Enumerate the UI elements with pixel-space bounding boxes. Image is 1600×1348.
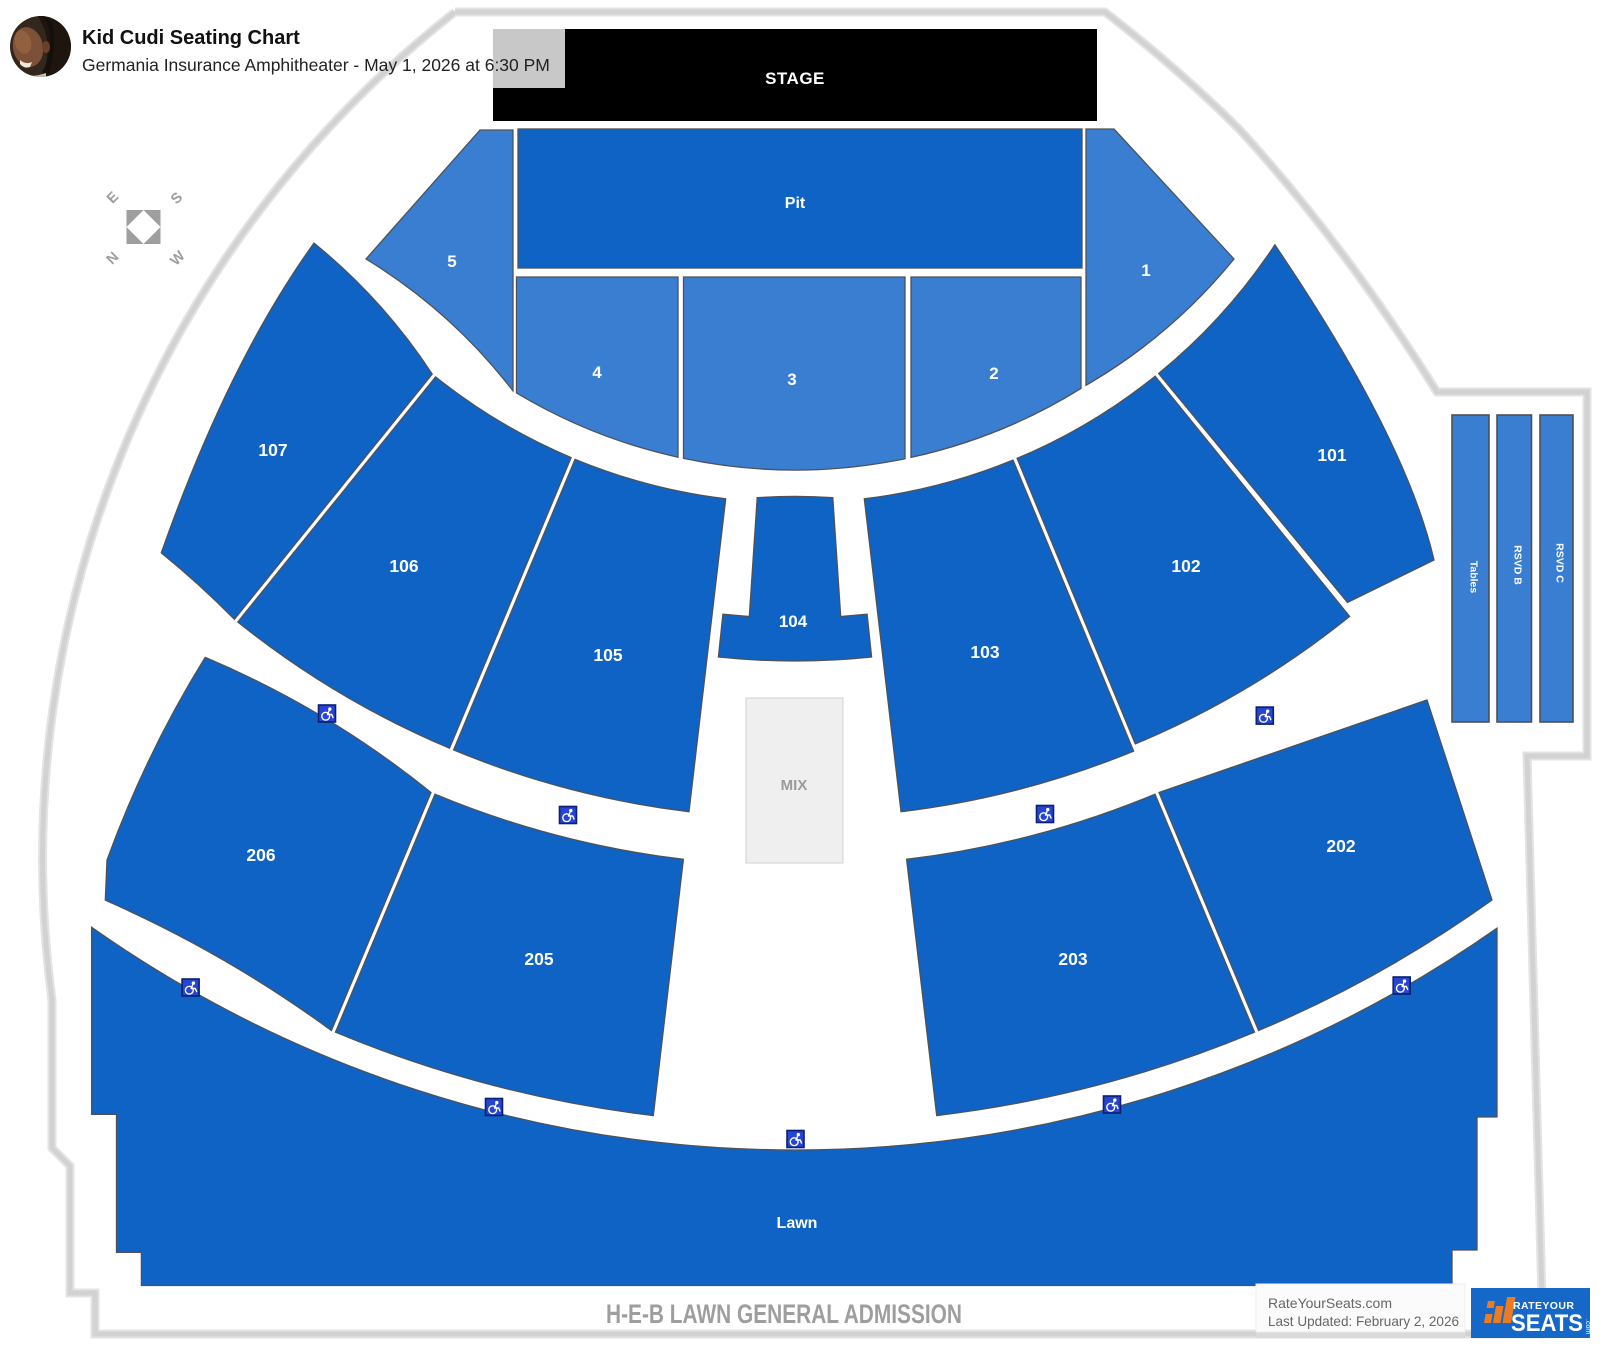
svg-text:STAGE: STAGE bbox=[765, 69, 825, 88]
svg-text:S: S bbox=[168, 189, 186, 207]
svg-text:MIX: MIX bbox=[781, 777, 808, 794]
svg-text:SEATS: SEATS bbox=[1511, 1310, 1583, 1337]
svg-text:RSVD C: RSVD C bbox=[1554, 543, 1566, 583]
svg-text:202: 202 bbox=[1326, 836, 1355, 856]
svg-text:2: 2 bbox=[989, 364, 998, 383]
svg-text:Tables: Tables bbox=[1468, 561, 1480, 594]
svg-text:107: 107 bbox=[258, 440, 287, 460]
svg-text:E: E bbox=[104, 189, 122, 207]
svg-text:103: 103 bbox=[970, 642, 999, 662]
svg-text:102: 102 bbox=[1171, 556, 1200, 576]
svg-text:Last Updated: February 2, 2026: Last Updated: February 2, 2026 bbox=[1268, 1313, 1459, 1329]
svg-text:105: 105 bbox=[593, 645, 622, 665]
svg-text:5: 5 bbox=[447, 252, 456, 271]
svg-text:3: 3 bbox=[787, 370, 796, 389]
svg-text:RSVD B: RSVD B bbox=[1511, 545, 1523, 585]
svg-text:Kid Cudi Seating Chart: Kid Cudi Seating Chart bbox=[82, 27, 300, 49]
svg-text:203: 203 bbox=[1058, 949, 1087, 969]
svg-text:RateYourSeats.com: RateYourSeats.com bbox=[1268, 1295, 1392, 1311]
svg-text:4: 4 bbox=[592, 363, 602, 382]
svg-text:206: 206 bbox=[246, 845, 275, 865]
svg-text:Germania Insurance Amphitheate: Germania Insurance Amphitheater - May 1,… bbox=[82, 55, 550, 75]
svg-text:W: W bbox=[168, 248, 189, 269]
svg-text:104: 104 bbox=[779, 612, 808, 631]
svg-text:Lawn: Lawn bbox=[777, 1215, 818, 1232]
svg-text:205: 205 bbox=[524, 949, 553, 969]
svg-text:N: N bbox=[104, 249, 123, 268]
svg-text:Pit: Pit bbox=[785, 195, 806, 212]
svg-text:1: 1 bbox=[1141, 261, 1150, 280]
svg-text:106: 106 bbox=[389, 556, 418, 576]
svg-text:101: 101 bbox=[1317, 445, 1346, 465]
svg-text:H-E-B LAWN GENERAL ADMISSION: H-E-B LAWN GENERAL ADMISSION bbox=[606, 1299, 962, 1329]
svg-text:.com: .com bbox=[1584, 1319, 1591, 1334]
